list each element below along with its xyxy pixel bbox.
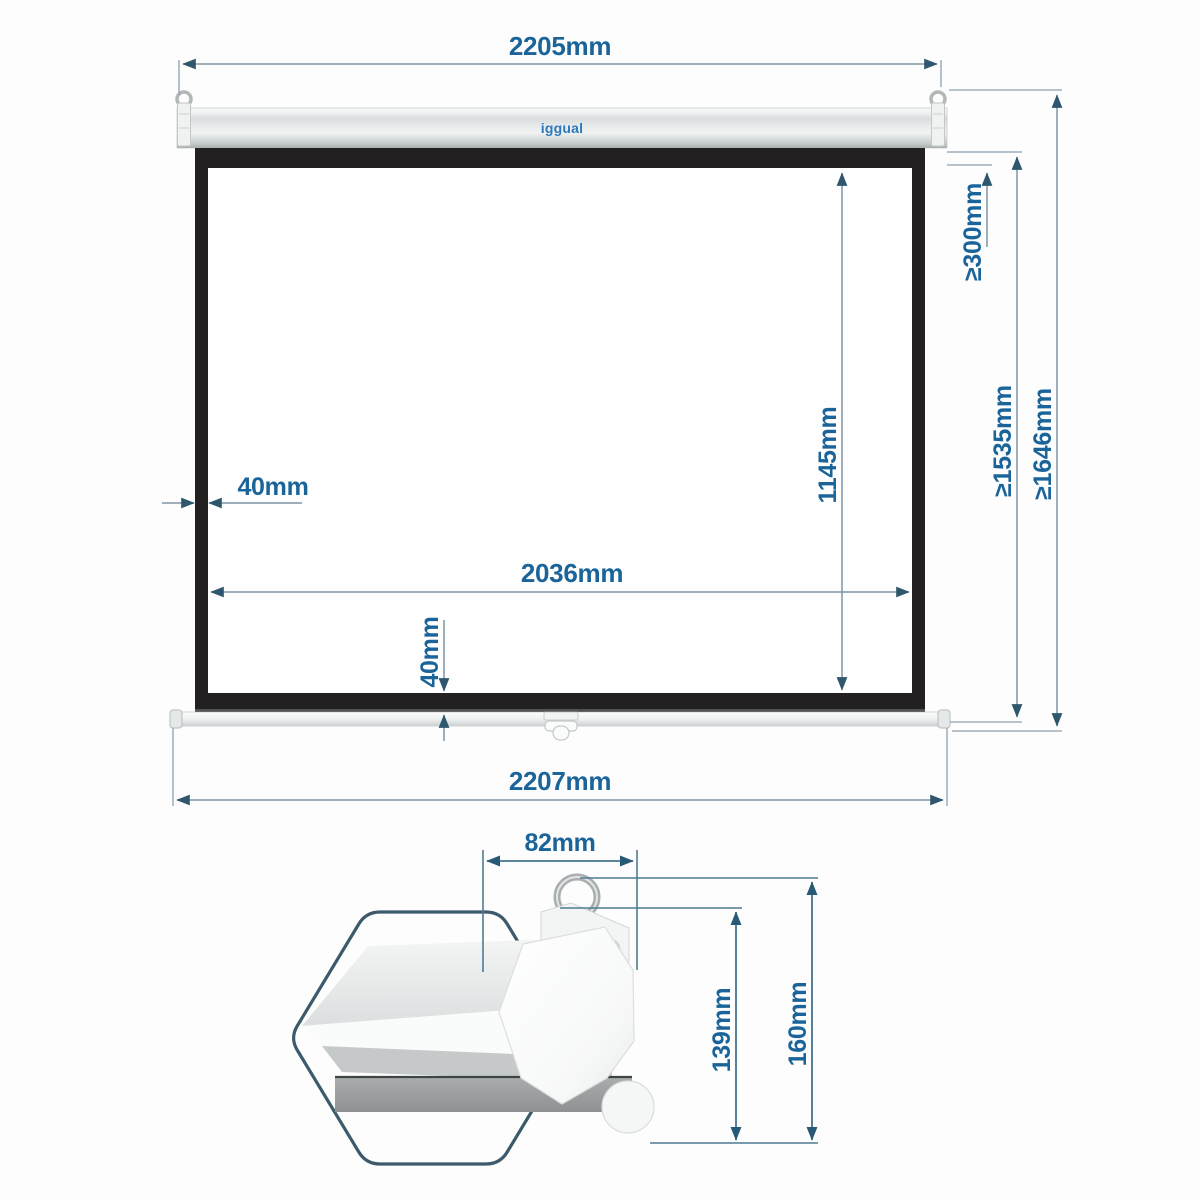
screen-casing: iggual xyxy=(177,92,947,148)
technical-drawing: iggual 2205mm 2207m xyxy=(0,0,1200,1200)
dimension-label: 2207mm xyxy=(509,766,611,796)
right-eyelet-hook xyxy=(931,92,945,146)
dim-min-drop: ≥300mm xyxy=(947,165,992,281)
slat-endcap-left xyxy=(170,710,182,728)
bottom-slat xyxy=(170,710,950,740)
dim-case-width: 2205mm xyxy=(179,31,941,95)
dimension-label: 2036mm xyxy=(521,558,623,588)
brand-logo: iggual xyxy=(541,120,583,136)
viewing-surface xyxy=(208,168,912,693)
dimension-label: 82mm xyxy=(524,829,595,857)
roller-end xyxy=(602,1081,654,1133)
handle-plate xyxy=(544,712,578,720)
bracket-side-view: 82mm 139mm 160mm xyxy=(294,829,818,1164)
pull-handle-tab xyxy=(553,726,569,740)
dimension-label: 160mm xyxy=(784,982,812,1067)
dimension-label: ≥300mm xyxy=(959,183,987,281)
dimension-label: 1145mm xyxy=(814,407,842,504)
slat-endcap-right xyxy=(938,710,950,728)
dimension-label: 40mm xyxy=(416,616,444,687)
drawing-canvas: iggual 2205mm 2207m xyxy=(0,0,1200,1200)
dimension-label: ≥1535mm xyxy=(989,385,1017,497)
dimension-label: 139mm xyxy=(708,988,736,1073)
dimension-label: ≥1646mm xyxy=(1029,388,1057,500)
screen-front-view: iggual 2205mm 2207m xyxy=(162,31,1062,806)
dimension-label: 40mm xyxy=(237,473,308,501)
dimension-label: 2205mm xyxy=(509,31,611,61)
left-eyelet-hook xyxy=(177,92,191,146)
